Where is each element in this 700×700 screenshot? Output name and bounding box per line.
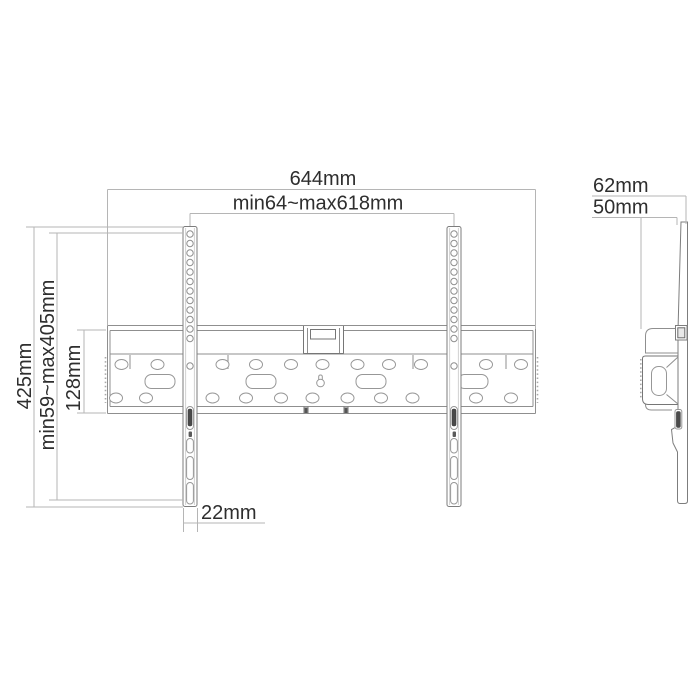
side-top-clip [676, 326, 688, 341]
plate-keyhole [317, 375, 325, 387]
side-arm-profile [672, 222, 688, 504]
plate-bottom-tabs [304, 407, 348, 414]
left-bracket-arm [183, 227, 197, 507]
wall-mount-drawing: 644mm min64~max618mm 425mm min59~max405m… [0, 0, 700, 700]
side-plate-section [641, 329, 678, 411]
right-bracket-arm [447, 227, 461, 507]
wall-plate [106, 326, 538, 414]
dim-label-depth-total: 62mm [593, 175, 649, 197]
technical-drawing-page: 644mm min64~max618mm 425mm min59~max405m… [0, 0, 700, 700]
side-view: 62mm 50mm [592, 175, 688, 504]
plate-top-clip [304, 326, 344, 354]
dim-label-plate-height: 128mm [63, 345, 85, 412]
dim-label-depth-plate: 50mm [593, 197, 649, 219]
dimension-mount-range: min64~max618mm [190, 193, 454, 227]
plate-slot-row-upper [115, 360, 528, 370]
dimension-plate-height: 128mm [63, 330, 106, 413]
dim-label-total-width: 644mm [290, 168, 357, 190]
dim-label-height-range: min59~max405mm [37, 280, 59, 451]
dim-label-arm-width: 22mm [201, 502, 257, 524]
side-locking-screw [675, 410, 682, 430]
side-plate-slot [652, 367, 667, 396]
dim-label-total-height: 425mm [14, 343, 36, 410]
dim-label-mount-range: min64~max618mm [233, 193, 404, 215]
front-view: 644mm min64~max618mm 425mm min59~max405m… [14, 168, 538, 532]
dimension-depth-plate: 50mm [592, 197, 677, 330]
